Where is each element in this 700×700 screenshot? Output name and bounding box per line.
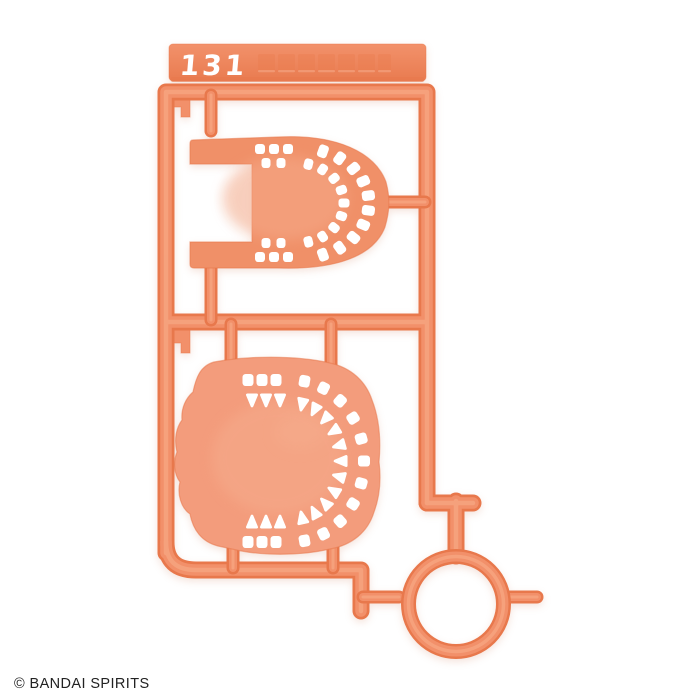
perforation-hole [283,252,293,262]
sprue-illustration: 131 [0,0,700,700]
perforation-hole [257,536,268,548]
perforation-hole [258,70,275,72]
perforation-hole [277,158,286,168]
perforation-hole [298,70,315,72]
perforation-hole [298,534,311,548]
perforation-hole [271,374,282,386]
perforation-hole [358,54,375,71]
perforation-hole [269,252,279,262]
perforation-hole [298,54,315,71]
perforation-hole [262,158,271,168]
perforation-hole [378,54,391,71]
perforation-hole [255,144,265,154]
perforation-hole [339,199,350,208]
perforation-hole [338,54,355,71]
perforation-hole [361,205,375,217]
perforation-hole [257,374,268,386]
perforation-hole [262,238,271,248]
perforation-hole [243,536,254,548]
runner-number-text: 131 [178,49,248,82]
perforation-hole [318,54,335,71]
perforation-hole [358,70,375,72]
copyright-text: © BANDAI SPIRITS [14,676,150,692]
perforation-hole [358,456,370,467]
perforation-hole [338,70,355,72]
runner-label-bar: 131 [169,44,426,82]
perforation-hole [255,252,265,262]
perforation-hole [318,70,335,72]
part-ring [409,557,504,652]
perforation-hole [278,70,295,72]
perforation-hole [378,70,391,72]
product-photo: 131 © BANDAI SPIRITS [0,0,700,700]
perforation-hole [269,144,279,154]
part-upper [190,137,389,269]
perforation-hole [258,54,275,71]
perforation-hole [243,374,254,386]
perforation-hole [361,190,375,202]
part-lower [175,357,380,554]
perforation-hole [278,54,295,71]
perforation-hole [271,536,282,548]
perforation-hole [283,144,293,154]
perforation-hole [298,374,311,388]
perforation-hole [277,238,286,248]
